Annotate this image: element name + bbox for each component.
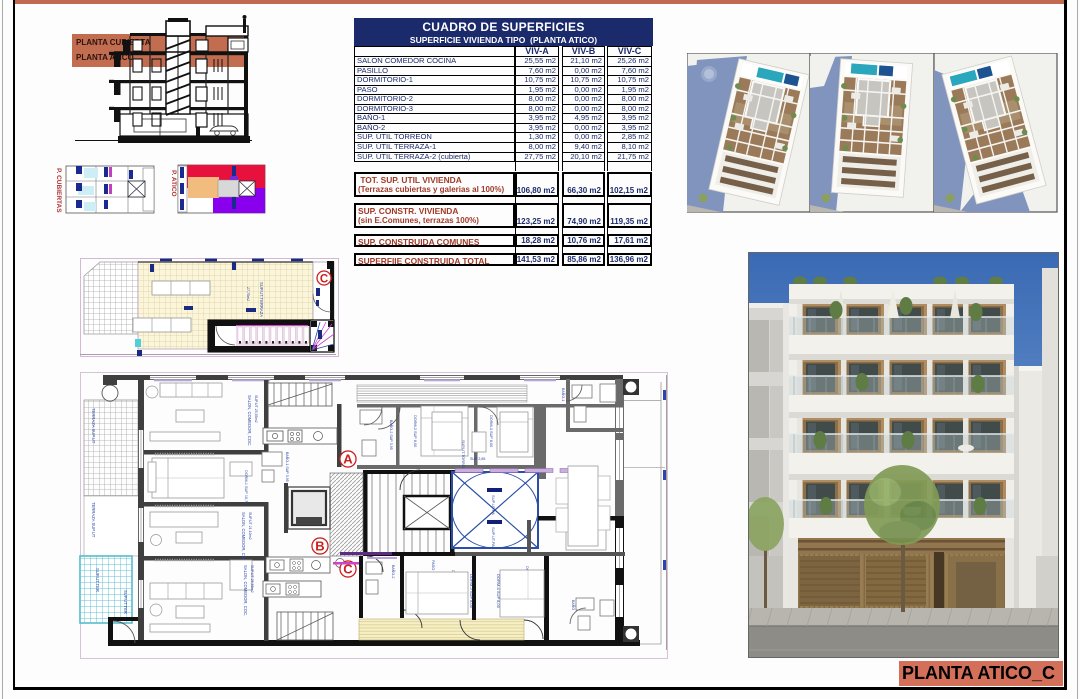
svg-text:BAÑO-2: BAÑO-2 [391, 565, 396, 578]
svg-text:SUP.UT.PA: SUP.UT.PA [491, 495, 496, 515]
svg-text:SUP.UT.TER: SUP.UT.TER [123, 590, 128, 614]
svg-text:C: C [320, 273, 328, 285]
svg-text:B: B [315, 539, 324, 554]
svg-text:SUP.UT.PA: SUP.UT.PA [491, 527, 496, 547]
svg-text:P. ATICO: P. ATICO [170, 170, 177, 197]
svg-text:PASO: PASO [431, 560, 435, 570]
svg-text:SUP.UT 21,10m2: SUP.UT 21,10m2 [248, 512, 252, 540]
svg-text:DORM-3 SUP 8,00: DORM-3 SUP 8,00 [469, 574, 474, 609]
svg-text:BAÑO: BAÑO [571, 600, 576, 610]
svg-text:A: A [343, 452, 353, 467]
svg-text:BAÑO-1: BAÑO-1 [561, 388, 566, 401]
svg-text:BAÑO-1 SUP 3,95: BAÑO-1 SUP 3,95 [285, 452, 290, 482]
svg-text:DORM-2 SUP 8,00: DORM-2 SUP 8,00 [413, 415, 417, 447]
svg-text:SALON, COMEDOR, COC.: SALON, COMEDOR, COC. [241, 512, 246, 563]
svg-text:DORM-4 SUP 8,00: DORM-4 SUP 8,00 [496, 574, 501, 609]
svg-text:TERRAZA SUP.UT: TERRAZA SUP.UT [91, 502, 96, 538]
svg-text:DORM-1 SUP 10,75: DORM-1 SUP 10,75 [244, 470, 248, 504]
svg-text:P. CUBIERTAS: P. CUBIERTAS [55, 168, 62, 213]
svg-text:SUP.UT 25,55m2: SUP.UT 25,55m2 [254, 395, 258, 423]
svg-text:TERRAZA SUP.UT: TERRAZA SUP.UT [91, 408, 96, 444]
svg-text:SUP.UT.TERRAZA: SUP.UT.TERRAZA [259, 282, 264, 317]
svg-text:27,75m2: 27,75m2 [246, 287, 250, 301]
svg-text:SALON, COMEDOR, COC.: SALON, COMEDOR, COC. [247, 395, 252, 446]
svg-text:SUP.UT.TER: SUP.UT.TER [95, 568, 100, 592]
svg-text:SALON, COMEDOR, COC.: SALON, COMEDOR, COC. [243, 565, 248, 616]
svg-text:DORM-3 SUP 8,00: DORM-3 SUP 8,00 [489, 415, 493, 447]
svg-text:SUP.UT 25,55m2: SUP.UT 25,55m2 [250, 565, 254, 593]
svg-text:SUP 2,85: SUP 2,85 [470, 457, 485, 461]
